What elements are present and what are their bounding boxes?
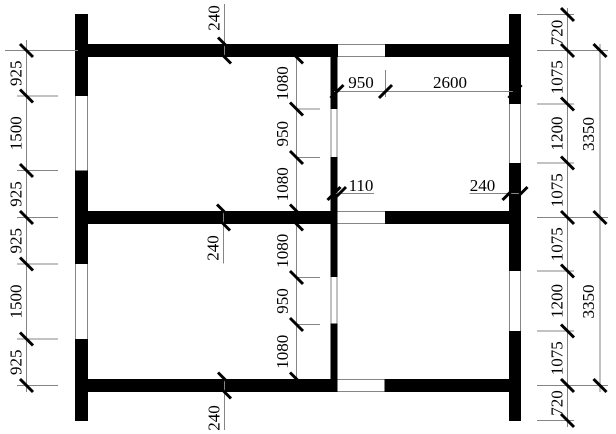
svg-text:1080: 1080	[273, 66, 292, 100]
svg-text:720: 720	[547, 20, 566, 46]
svg-text:1080: 1080	[273, 167, 292, 201]
svg-text:1075: 1075	[547, 173, 566, 207]
svg-text:240: 240	[203, 235, 222, 261]
svg-text:3350: 3350	[579, 285, 598, 319]
svg-text:110: 110	[349, 176, 374, 195]
svg-text:240: 240	[204, 5, 223, 31]
svg-text:1200: 1200	[547, 284, 566, 318]
svg-text:240: 240	[204, 405, 223, 431]
svg-text:1075: 1075	[547, 227, 566, 261]
svg-text:240: 240	[470, 176, 496, 195]
svg-text:1080: 1080	[273, 335, 292, 369]
svg-text:1080: 1080	[273, 234, 292, 268]
svg-text:925: 925	[6, 228, 25, 254]
svg-text:1200: 1200	[547, 117, 566, 151]
svg-text:2600: 2600	[433, 73, 467, 92]
svg-text:950: 950	[273, 121, 292, 147]
svg-text:925: 925	[6, 350, 25, 376]
svg-text:1500: 1500	[6, 285, 25, 319]
svg-text:1075: 1075	[547, 341, 566, 375]
svg-text:925: 925	[6, 61, 25, 87]
svg-text:1500: 1500	[6, 116, 25, 150]
svg-text:720: 720	[547, 390, 566, 416]
svg-text:950: 950	[348, 73, 374, 92]
svg-text:925: 925	[6, 181, 25, 207]
svg-text:950: 950	[273, 288, 292, 314]
svg-text:3350: 3350	[579, 117, 598, 151]
svg-text:1075: 1075	[547, 60, 566, 94]
